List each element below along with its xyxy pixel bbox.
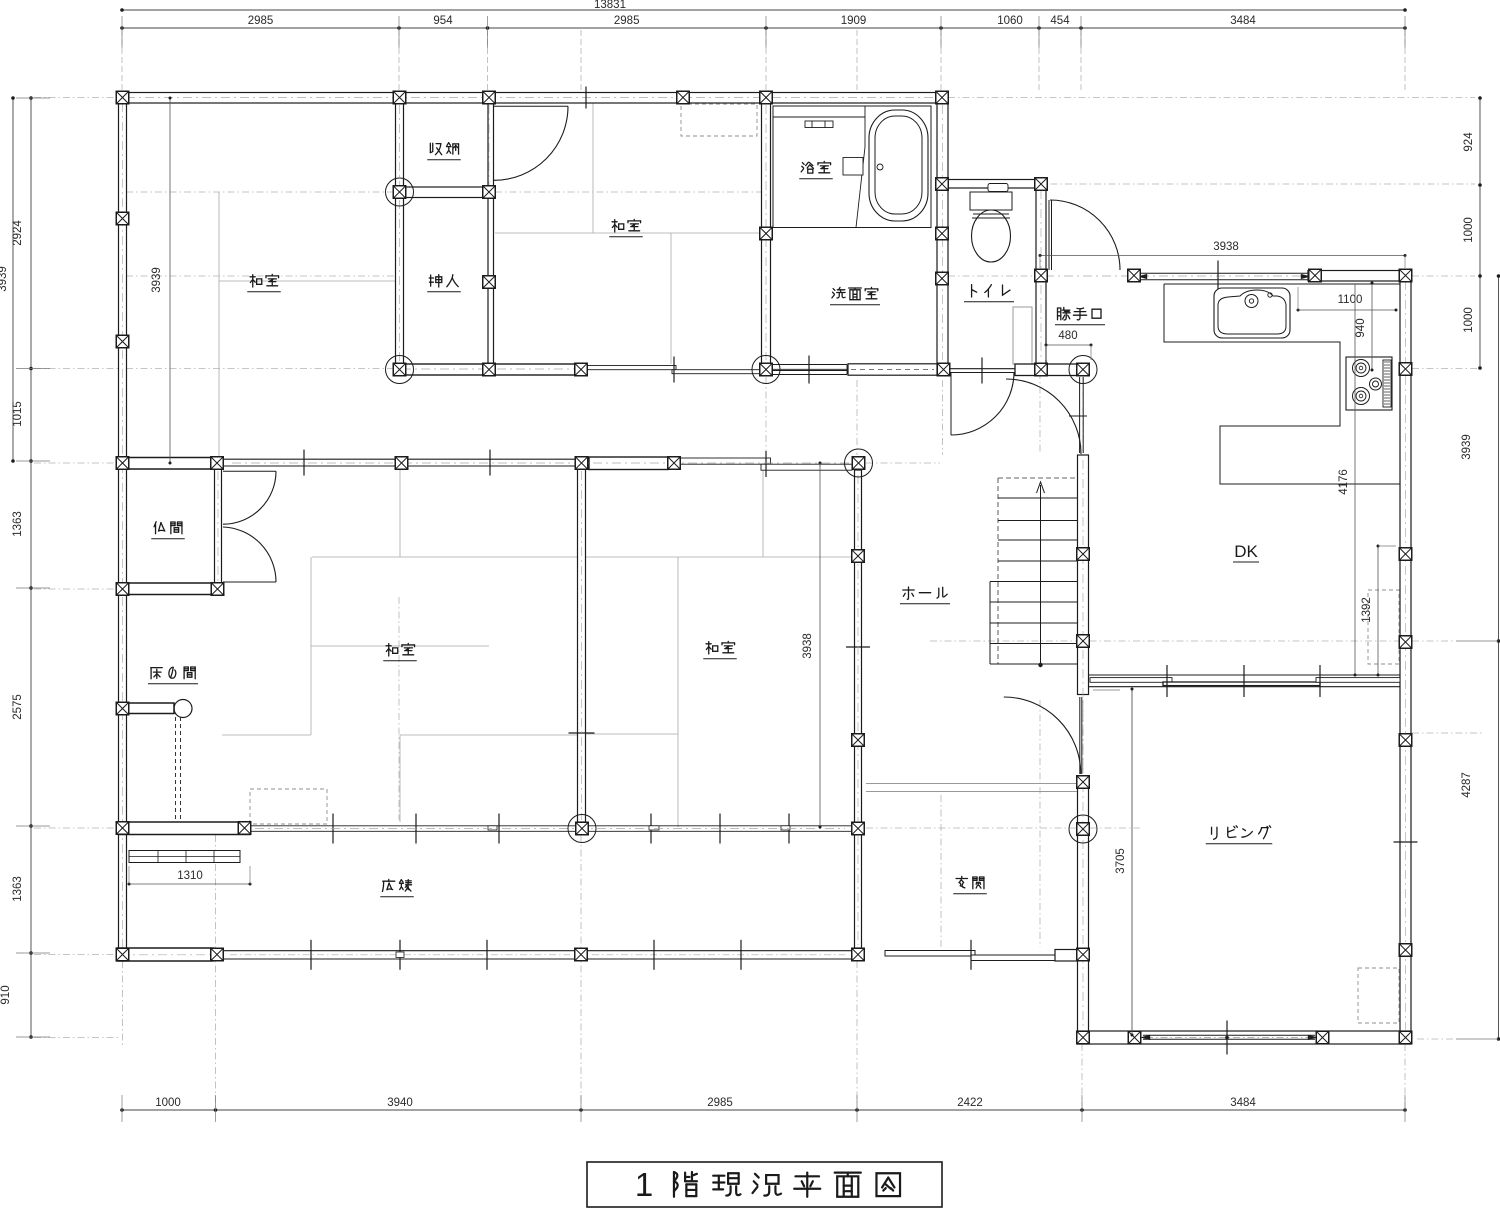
svg-text:DK: DK [1234, 542, 1258, 561]
svg-text:3484: 3484 [1230, 15, 1256, 27]
svg-text:940: 940 [1355, 318, 1367, 337]
svg-text:3939: 3939 [151, 267, 163, 293]
svg-text:1000: 1000 [1463, 307, 1475, 333]
svg-text:1: 1 [635, 1166, 653, 1203]
svg-text:1000: 1000 [1463, 217, 1475, 243]
svg-text:3939: 3939 [0, 266, 9, 292]
svg-text:1310: 1310 [177, 870, 203, 882]
svg-text:1000: 1000 [155, 1097, 181, 1109]
svg-text:454: 454 [1050, 15, 1070, 27]
svg-text:4176: 4176 [1338, 469, 1350, 495]
svg-text:3940: 3940 [387, 1097, 413, 1109]
svg-text:1392: 1392 [1361, 597, 1373, 623]
svg-text:1363: 1363 [12, 511, 24, 537]
svg-text:2985: 2985 [707, 1097, 733, 1109]
svg-text:3939: 3939 [1461, 434, 1473, 460]
svg-text:2985: 2985 [614, 15, 640, 27]
svg-text:954: 954 [433, 15, 453, 27]
svg-text:1060: 1060 [997, 15, 1023, 27]
svg-text:910: 910 [0, 985, 12, 1004]
svg-text:1015: 1015 [12, 401, 24, 427]
svg-text:3938: 3938 [1213, 241, 1239, 253]
svg-text:3705: 3705 [1115, 848, 1127, 874]
svg-text:3484: 3484 [1230, 1097, 1256, 1109]
svg-text:2422: 2422 [957, 1097, 983, 1109]
svg-text:1100: 1100 [1338, 294, 1363, 306]
svg-text:480: 480 [1058, 330, 1077, 342]
svg-text:3938: 3938 [802, 633, 814, 659]
svg-text:2985: 2985 [248, 15, 274, 27]
svg-text:2924: 2924 [12, 220, 24, 246]
svg-text:1909: 1909 [841, 15, 867, 27]
svg-text:924: 924 [1463, 132, 1475, 152]
svg-text:2575: 2575 [12, 694, 24, 720]
svg-text:1363: 1363 [12, 876, 24, 902]
svg-text:13831: 13831 [594, 0, 626, 11]
svg-text:4287: 4287 [1461, 772, 1473, 798]
